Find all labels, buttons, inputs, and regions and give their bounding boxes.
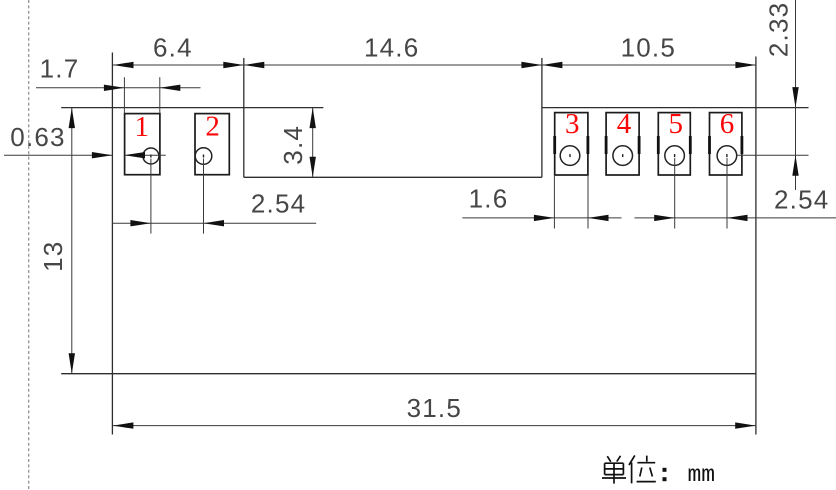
- svg-text:4: 4: [617, 108, 632, 140]
- svg-text:6: 6: [720, 108, 735, 140]
- svg-text:5: 5: [669, 108, 684, 140]
- svg-text:6.4: 6.4: [153, 33, 193, 63]
- svg-text:1: 1: [135, 111, 150, 143]
- svg-text:3.4: 3.4: [278, 125, 308, 165]
- svg-text:10.5: 10.5: [621, 33, 676, 63]
- svg-text:13: 13: [38, 241, 68, 272]
- svg-text:2.54: 2.54: [251, 188, 306, 218]
- svg-text:0.63: 0.63: [10, 122, 65, 152]
- svg-text:2: 2: [205, 110, 220, 142]
- svg-text:14.6: 14.6: [364, 33, 419, 63]
- svg-text:2.33: 2.33: [763, 2, 793, 57]
- svg-text:3: 3: [565, 108, 580, 140]
- svg-text:2.54: 2.54: [774, 185, 829, 215]
- svg-text:31.5: 31.5: [407, 393, 462, 423]
- svg-text:mm: mm: [688, 462, 716, 488]
- svg-text:1.6: 1.6: [469, 183, 509, 213]
- svg-text:1.7: 1.7: [40, 54, 80, 84]
